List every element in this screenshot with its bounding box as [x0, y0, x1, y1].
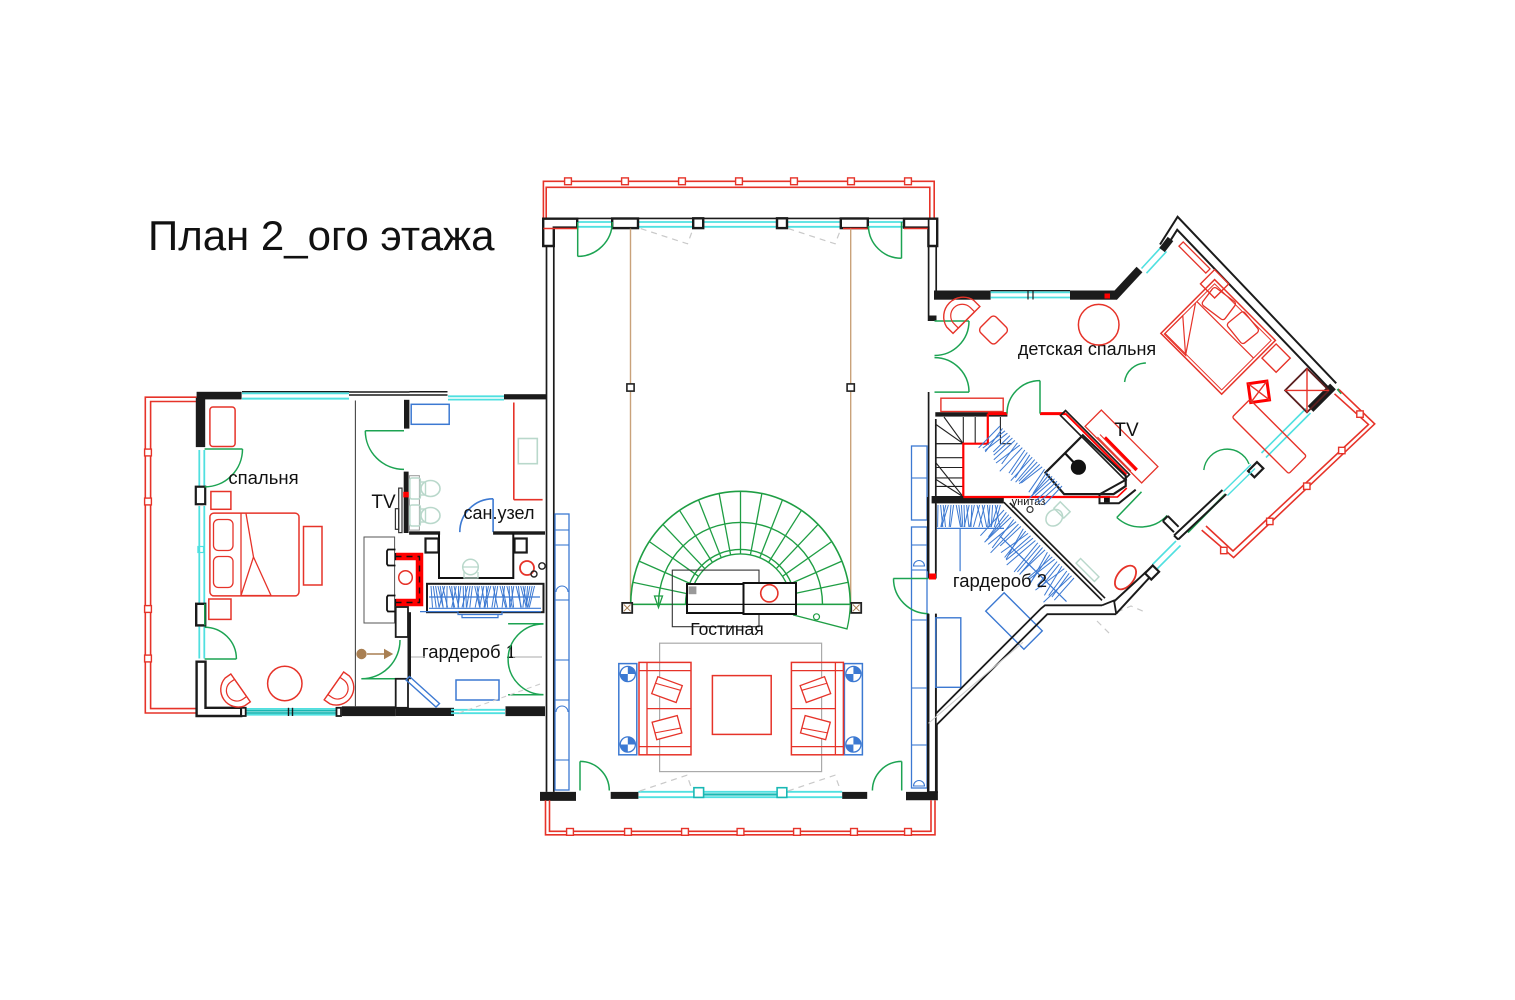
svg-text:TV: TV: [1114, 420, 1139, 441]
svg-text:спальня: спальня: [228, 467, 298, 488]
svg-text:сан.узел: сан.узел: [464, 503, 535, 523]
svg-text:унитаз: унитаз: [1012, 496, 1046, 508]
svg-text:План 2_ого этажа: План 2_ого этажа: [148, 212, 495, 259]
svg-text:Гостиная: Гостиная: [690, 619, 763, 639]
svg-text:TV: TV: [371, 492, 396, 513]
svg-text:гардероб 2: гардероб 2: [953, 570, 1047, 591]
svg-text:гардероб 1: гардероб 1: [422, 641, 516, 662]
